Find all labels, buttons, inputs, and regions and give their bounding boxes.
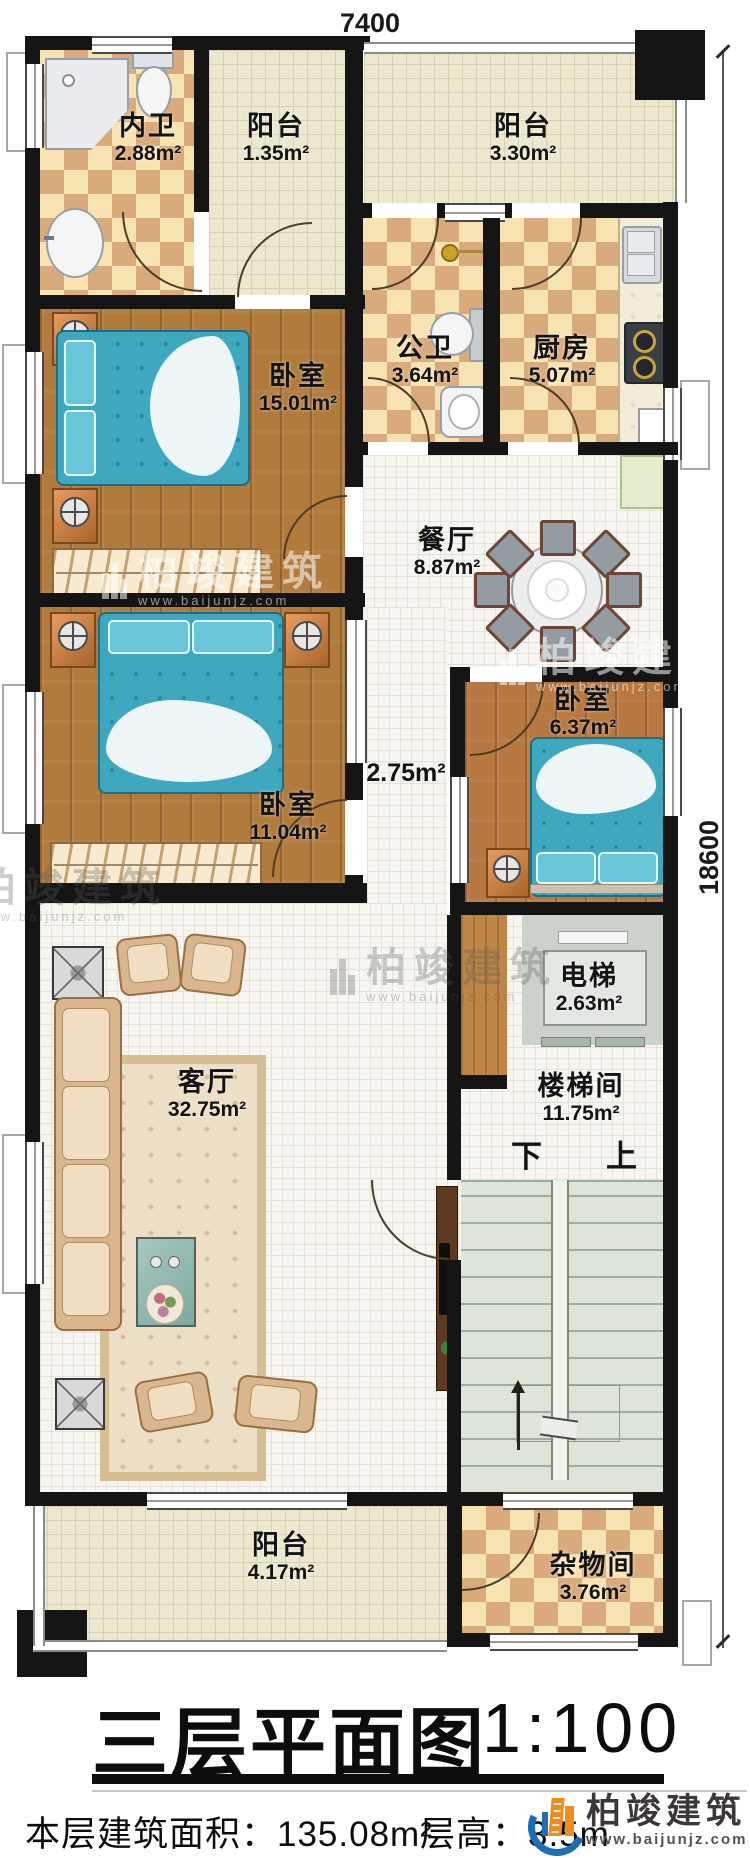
- window: [25, 1142, 44, 1284]
- wall: [345, 557, 363, 620]
- footer-area: 本层建筑面积：135.08m²: [25, 1806, 433, 1857]
- wall: [450, 902, 678, 915]
- coffee-cup: [168, 1256, 180, 1268]
- wall: [450, 682, 465, 777]
- shower-drain: [62, 74, 75, 87]
- wall: [505, 203, 512, 218]
- closet-strip: [461, 915, 507, 1075]
- room-label-storage: 杂物间3.76m²: [550, 1551, 637, 1604]
- sofa-cushion: [62, 1164, 110, 1238]
- stairs-down-label: 下: [511, 1131, 542, 1176]
- stove-burner: [633, 330, 656, 353]
- right-dimension-line: [722, 52, 724, 1648]
- dining-chair: [540, 520, 576, 556]
- corner-block: [635, 30, 705, 100]
- stairs-up-label: 上: [606, 1131, 637, 1176]
- sliding-window: [147, 1492, 347, 1510]
- bathroom-sink: [46, 208, 104, 278]
- bed-pillow: [536, 852, 596, 884]
- cabinet: [620, 455, 668, 509]
- side-table: [55, 1378, 105, 1430]
- window: [25, 352, 44, 474]
- kitchen-sink-basin: [627, 231, 655, 253]
- window: [490, 1633, 638, 1651]
- wall: [194, 36, 209, 212]
- wall: [25, 883, 367, 903]
- wall: [437, 203, 445, 218]
- window: [25, 64, 44, 148]
- wall: [428, 442, 508, 455]
- balcony-rail: [364, 42, 681, 54]
- room-label-kitchen: 厨房5.07m²: [529, 334, 596, 387]
- wall: [350, 203, 372, 218]
- room-label-inner-bath: 内卫2.88m²: [115, 112, 182, 165]
- wall: [447, 1260, 461, 1492]
- room-label-stairwell: 楼梯间11.75m²: [538, 1072, 625, 1125]
- room-label-corridor: 2.75m²: [366, 760, 445, 788]
- sofa-cushion: [62, 1008, 110, 1082]
- bed-pillow: [64, 340, 96, 406]
- window: [25, 692, 44, 824]
- armchair-cushion: [190, 942, 234, 985]
- brand-url: www.baijunjz.com: [586, 1831, 747, 1848]
- bed-headboard: [530, 884, 665, 894]
- window: [663, 708, 682, 816]
- room-floor-balcony-3: [33, 1506, 447, 1646]
- stove-burner: [633, 356, 656, 379]
- elevator-door: [595, 1037, 645, 1047]
- nightstand-knob-icon: [493, 855, 521, 883]
- brand-logo: 柏竣建筑 www.baijunjz.com: [528, 1792, 748, 1854]
- nightstand-knob-icon: [58, 621, 88, 651]
- wall: [483, 218, 500, 442]
- sofa-cushion: [62, 1242, 110, 1316]
- brand-name: 柏竣建筑: [586, 1794, 747, 1831]
- sliding-door: [450, 777, 469, 883]
- page-scale: 1:100: [482, 1688, 682, 1768]
- side-table: [52, 946, 104, 1000]
- elevator-slot: [558, 931, 628, 944]
- wall: [450, 667, 470, 682]
- nightstand-knob-icon: [292, 621, 322, 651]
- dining-table-center: [545, 578, 569, 602]
- armchair-cushion: [126, 942, 170, 984]
- wall: [447, 915, 461, 1180]
- room-label-balcony-2: 阳台3.30m²: [490, 112, 557, 165]
- wall: [345, 442, 368, 455]
- flower-decor: [146, 1284, 184, 1324]
- wall: [447, 1506, 462, 1633]
- room-label-dining: 餐厅8.87m²: [414, 526, 481, 579]
- stair-arrow-head-icon: [511, 1380, 525, 1393]
- brand-logo-building-icon: [542, 1812, 548, 1836]
- sink-basin: [448, 394, 480, 430]
- wall: [345, 763, 363, 800]
- room-label-bedroom-15: 卧室15.01m²: [259, 362, 337, 415]
- brand-text-block: 柏竣建筑 www.baijunjz.com: [586, 1794, 747, 1848]
- wardrobe: [52, 548, 262, 595]
- wardrobe: [50, 842, 262, 885]
- wall: [345, 36, 363, 218]
- bed-pillow: [192, 620, 274, 654]
- door-handle: [441, 244, 459, 262]
- room-label-bedroom-11: 卧室11.04m²: [249, 791, 326, 844]
- room-label-elevator: 电梯2.63m²: [556, 962, 623, 1015]
- kitchen-sink-basin: [627, 254, 655, 276]
- window-sill: [680, 380, 710, 470]
- bed-pillow: [64, 410, 96, 476]
- room-label-living: 客厅32.75m²: [168, 1068, 246, 1121]
- floor-plan-page: 7400 18600: [0, 0, 750, 1858]
- elevator-door: [541, 1037, 591, 1047]
- title-underline: [92, 1774, 664, 1784]
- room-label-bedroom-6: 卧室6.37m²: [550, 686, 617, 739]
- balcony-rail: [33, 1506, 45, 1646]
- room-label-balcony-1: 阳台1.35m²: [243, 112, 310, 165]
- bed-pillow: [108, 620, 190, 654]
- coffee-cup: [150, 1256, 162, 1268]
- brand-logo-building-icon: [565, 1806, 574, 1836]
- window-sill: [682, 1600, 712, 1666]
- stair-arrow-stem: [517, 1392, 520, 1450]
- room-label-balcony-3: 阳台4.17m²: [248, 1531, 315, 1584]
- wall: [542, 667, 678, 682]
- window: [92, 36, 172, 54]
- balcony-rail: [33, 1640, 447, 1652]
- window: [503, 1492, 633, 1510]
- wall: [25, 295, 235, 309]
- bed-pillow: [598, 852, 658, 884]
- dining-chair: [540, 626, 576, 662]
- wall: [450, 883, 465, 902]
- top-dimension: 7400: [340, 8, 400, 39]
- sofa-cushion: [62, 1086, 110, 1160]
- armchair-cushion: [248, 1383, 301, 1422]
- sink-tap: [44, 236, 54, 240]
- right-dimension: 18600: [694, 820, 725, 895]
- room-floor-corridor: [367, 607, 447, 903]
- wall: [461, 1075, 507, 1089]
- room-label-public-bath: 公卫3.64m²: [392, 334, 459, 387]
- sliding-door: [345, 620, 367, 763]
- wall: [580, 203, 678, 218]
- wall: [578, 442, 678, 455]
- wall: [25, 593, 365, 607]
- dining-chair: [606, 572, 642, 608]
- nightstand-knob-icon: [60, 497, 90, 527]
